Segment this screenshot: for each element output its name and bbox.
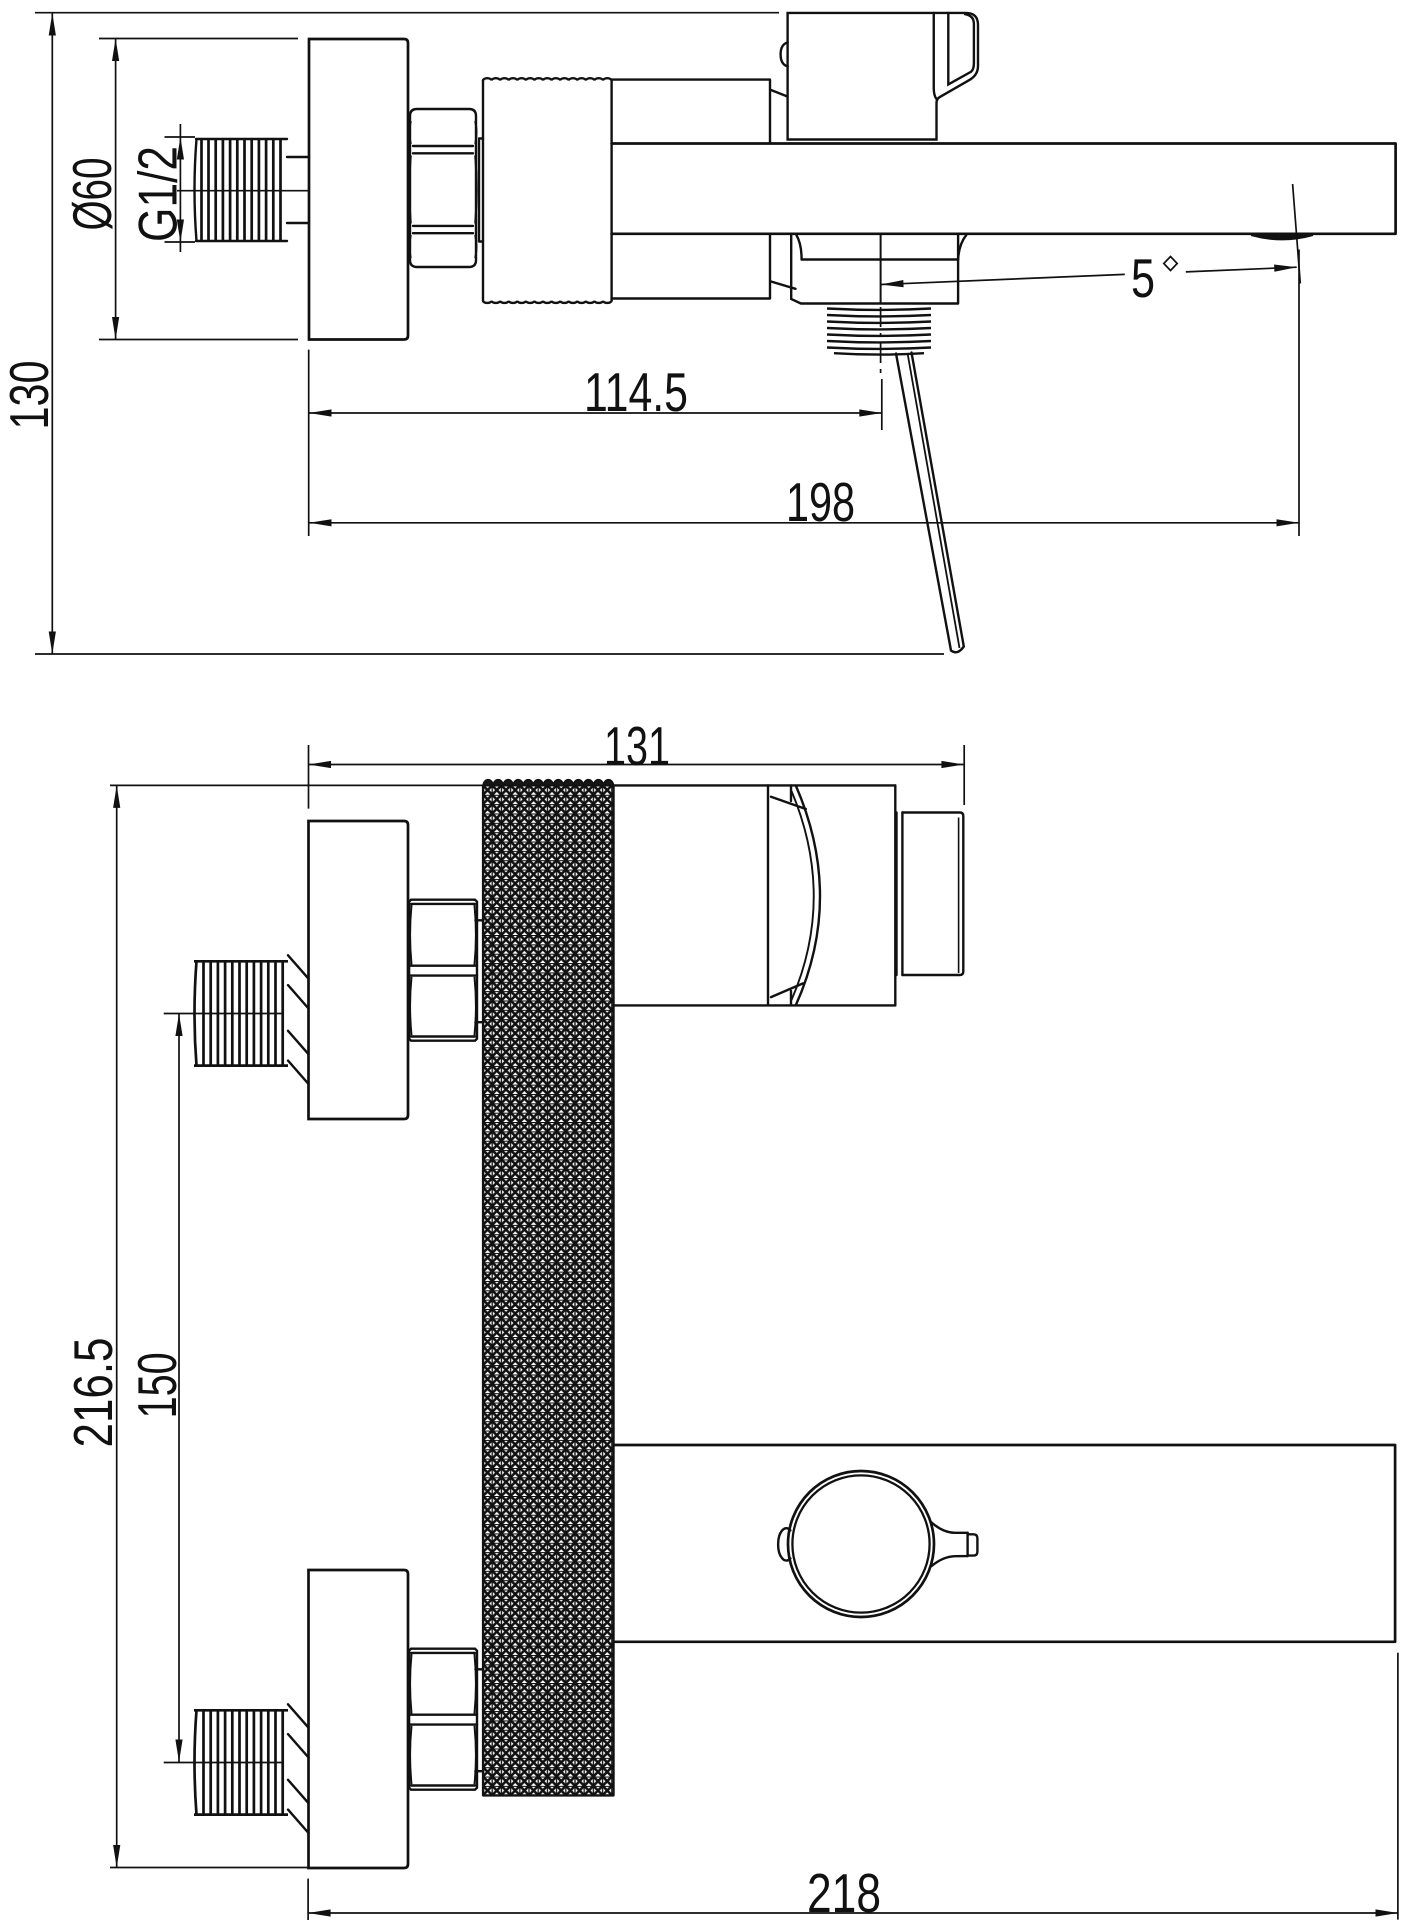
svg-text:G1/2: G1/2 [127,146,189,242]
svg-text:218: 218 [807,1862,881,1920]
svg-text:130: 130 [0,361,60,430]
svg-text:198: 198 [786,471,855,533]
svg-text:131: 131 [604,715,670,777]
svg-text:114.5: 114.5 [584,361,688,423]
svg-text:Ø60: Ø60 [61,158,123,231]
svg-text:150: 150 [126,1352,188,1418]
svg-text:216.5: 216.5 [62,1338,124,1448]
svg-text:5: 5 [1131,247,1155,309]
